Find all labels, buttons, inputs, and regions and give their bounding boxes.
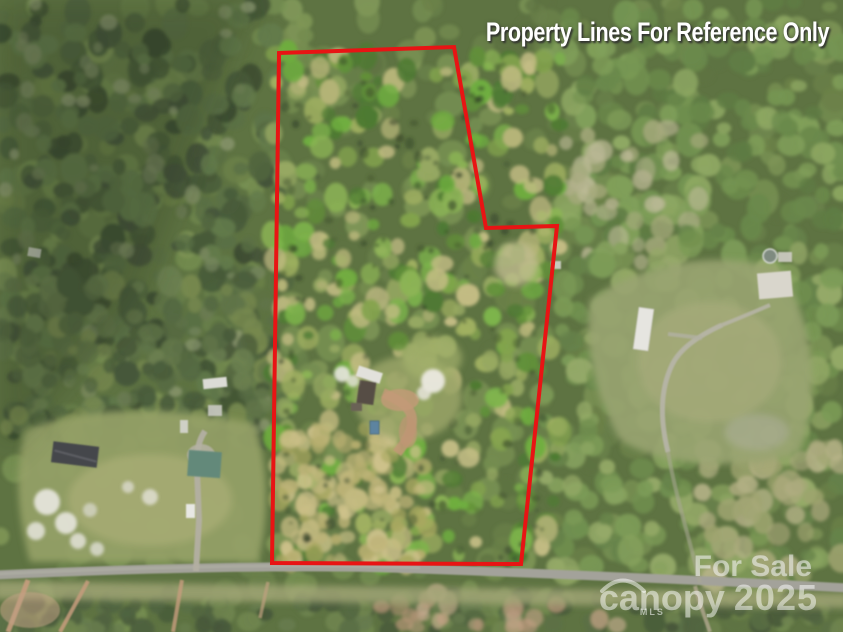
watermark-brand-line: canopy MLS 2025: [599, 577, 818, 619]
disclaimer-text: Property Lines For Reference Only: [486, 17, 829, 48]
watermark-year-text: 2025: [734, 577, 818, 619]
neighbor-house-green-roof: [187, 450, 222, 478]
property-house-roof: [356, 380, 376, 405]
canopy-logo-arc-icon: [599, 577, 647, 593]
watermark-brand-text: canopy MLS: [599, 577, 725, 619]
aerial-photo: [0, 0, 843, 632]
blue-vehicle: [370, 421, 379, 434]
watermark-mls-text: MLS: [640, 607, 665, 617]
trampoline: [763, 249, 777, 263]
aerial-listing-photo: Property Lines For Reference Only For Sa…: [0, 0, 843, 632]
white-car: [186, 504, 195, 518]
neighbor-white-shed: [757, 271, 793, 300]
